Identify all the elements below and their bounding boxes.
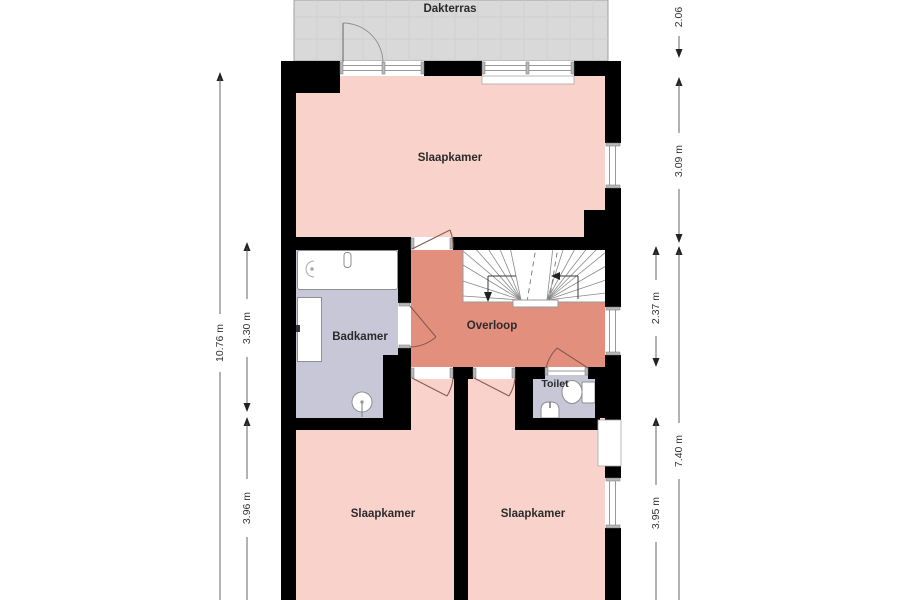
room-overloop-upper (411, 247, 463, 303)
room-label-slaapkamer-right: Slaapkamer (501, 508, 566, 520)
staircase (463, 247, 606, 307)
dim-badkamer: 3.30 m (241, 312, 253, 344)
bathtub-faucet-icon (344, 253, 351, 268)
bathtub-drain-dot (310, 267, 314, 271)
wall-segment (398, 237, 411, 303)
floorplan-drawing: Dakterras (0, 0, 900, 600)
room-overloop (411, 302, 606, 367)
wall-segment (595, 367, 606, 418)
door-opening-badkamer (398, 303, 411, 348)
dakterras-area: Dakterras (294, 0, 608, 61)
door-opening-bedroom-left (411, 367, 453, 379)
wall-segment (424, 61, 482, 76)
wall-segment (281, 61, 296, 600)
wall-segment (281, 61, 340, 93)
wall-segment (454, 367, 468, 600)
dim-terrace: 2.06 (673, 7, 685, 28)
room-label-dakterras: Dakterras (423, 3, 476, 15)
wall-segment (574, 61, 621, 76)
floorplan-page: Dakterras (0, 0, 900, 600)
toilet-tank-icon (582, 382, 595, 403)
dim-slaapkamer-top: 3.09 m (673, 145, 685, 177)
wall-segment (515, 367, 533, 418)
room-label-toilet: Toilet (541, 378, 569, 390)
dim-slaapkamer-left: 3.96 m (241, 492, 253, 524)
room-label-badkamer: Badkamer (332, 331, 388, 343)
dim-slaapkamer-right: 3.95 m (650, 497, 662, 529)
room-label-overloop: Overloop (467, 320, 517, 332)
dim-lower-section: 7.40 m (673, 435, 685, 467)
window-sill (482, 76, 574, 84)
wall-segment (584, 210, 606, 250)
wall-segment (296, 237, 411, 250)
stair-bottom-step (513, 300, 558, 307)
shaft-niche (598, 420, 621, 466)
vanity-icon (298, 298, 322, 362)
shower-head-dot (360, 400, 363, 403)
window-right-2 (605, 307, 621, 355)
door-opening-bedroom-right (473, 367, 515, 379)
room-label-slaapkamer-left: Slaapkamer (351, 508, 416, 520)
room-label-slaapkamer-top: Slaapkamer (418, 152, 483, 164)
dim-overloop: 2.37 m (650, 292, 662, 324)
window-right-3 (605, 478, 621, 528)
window-right-1 (605, 143, 621, 188)
dim-total-left: 10.76 m (214, 324, 226, 362)
wall-segment (515, 418, 600, 430)
wall-segment (281, 418, 411, 430)
wall-segment (453, 237, 606, 250)
